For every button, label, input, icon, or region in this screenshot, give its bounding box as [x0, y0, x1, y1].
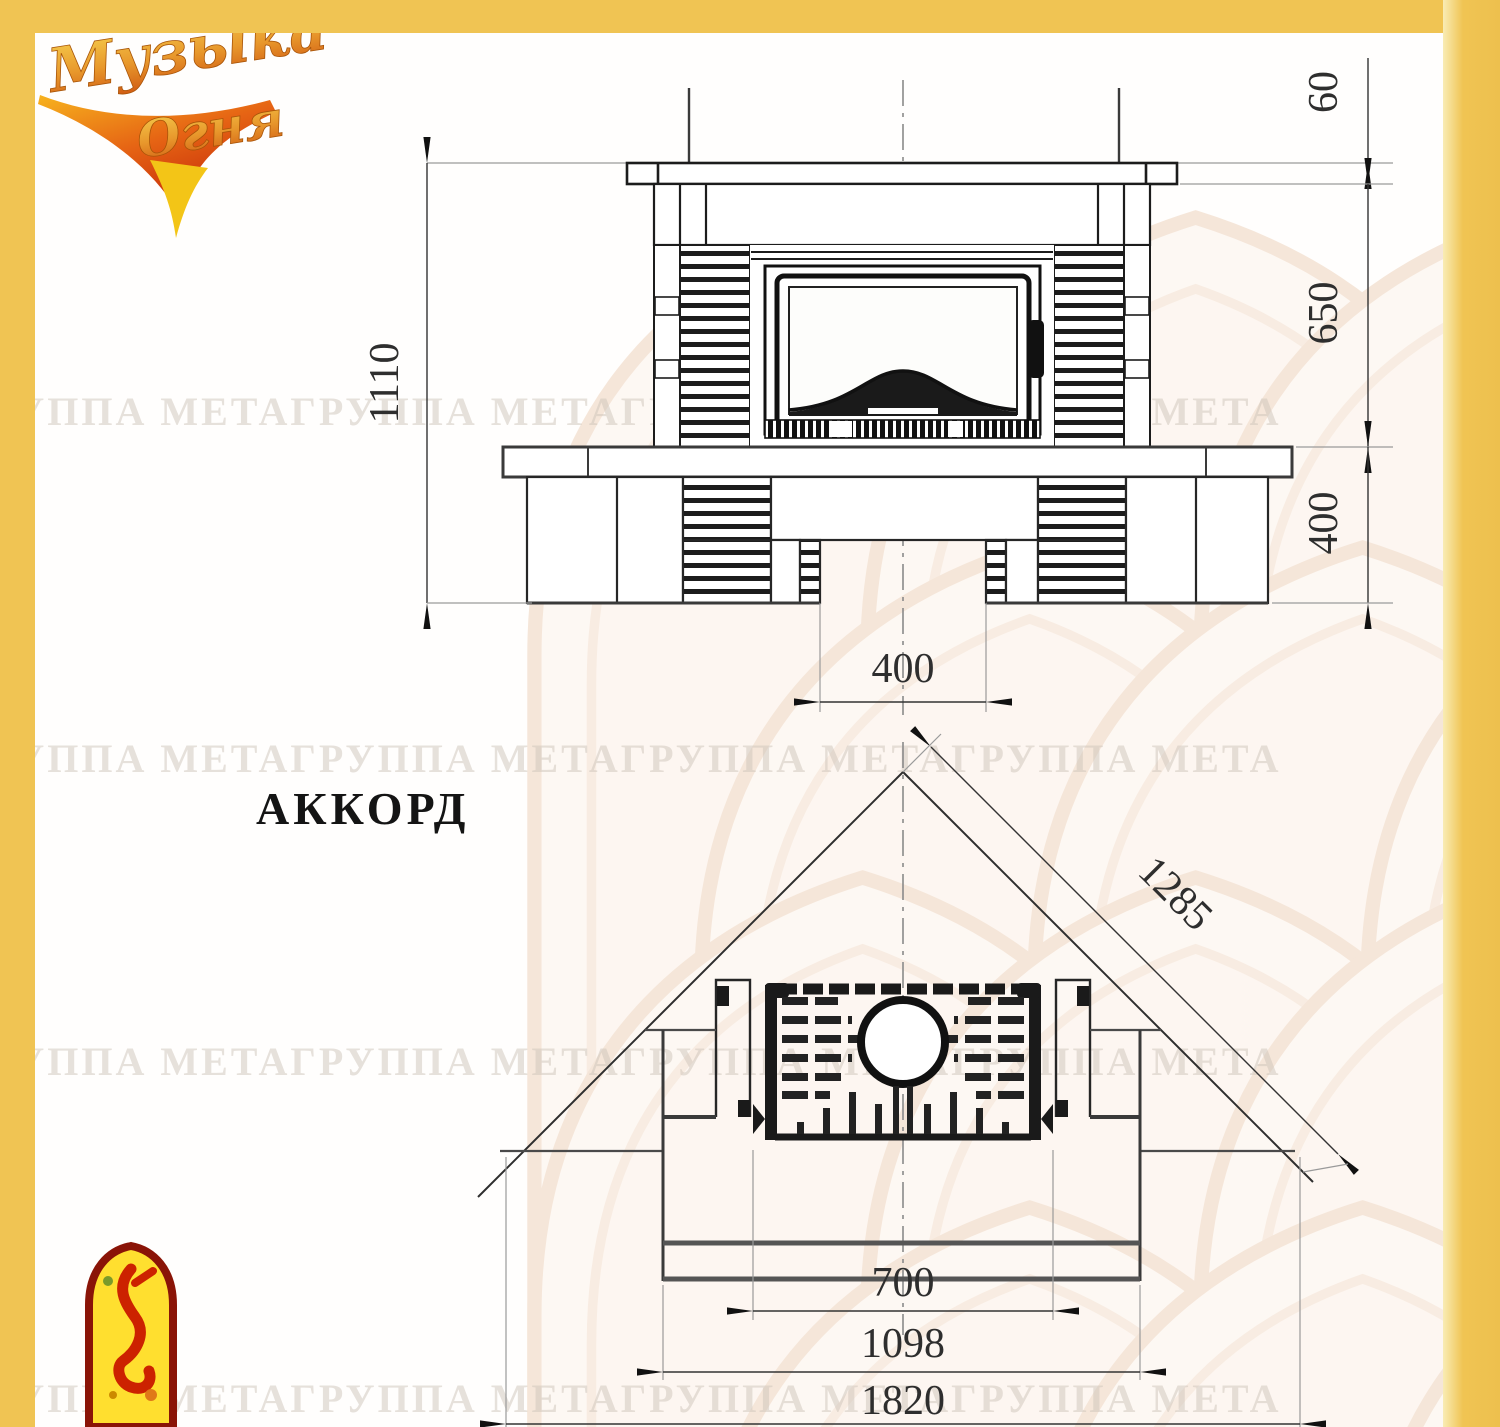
- svg-text:1820: 1820: [861, 1378, 945, 1424]
- hearth-slab: [503, 447, 1292, 477]
- frieze-band: [654, 184, 1150, 245]
- catalog-page: ГРУППА МЕТАГРУППА МЕТАГРУППА МЕТАГРУППА …: [0, 0, 1500, 1427]
- svg-text:400: 400: [1301, 492, 1347, 555]
- yellow-band-left: [0, 0, 35, 1427]
- svg-text:60: 60: [1301, 71, 1347, 113]
- mantel-shelf: [627, 163, 1177, 184]
- flue-collar-circle: [861, 1000, 945, 1084]
- svg-text:650: 650: [1301, 282, 1347, 345]
- logo-flame-tail: [150, 160, 208, 238]
- corner-emblem: [89, 1246, 173, 1427]
- base-center-panel: [771, 477, 1038, 540]
- firebox-insert: [750, 245, 1054, 447]
- logo-music-of-fire: Музыка Огня: [38, 0, 332, 238]
- dim-total-height: 1110: [362, 163, 532, 603]
- svg-text:1110: 1110: [362, 343, 408, 424]
- svg-text:700: 700: [872, 1260, 935, 1306]
- drawing-sheet: ГРУППА МЕТАГРУППА МЕТАГРУППА МЕТАГРУППА …: [0, 0, 1500, 1427]
- model-title: АККОРД: [256, 783, 469, 834]
- yellow-band-top: [0, 0, 1500, 33]
- watermark-text-row: ГРУППА МЕТАГРУППА МЕТАГРУППА МЕТАГРУППА …: [0, 736, 1281, 781]
- grate-band: [765, 420, 1040, 438]
- door-handle: [1028, 320, 1044, 378]
- logo-word-2: Огня: [133, 88, 288, 169]
- base-left-block: [527, 477, 683, 603]
- svg-text:400: 400: [872, 646, 935, 692]
- yellow-band-right: [1443, 0, 1500, 1427]
- svg-text:1098: 1098: [861, 1321, 945, 1367]
- dim-shelf-thickness: 60: [1180, 58, 1393, 184]
- pillar-right: [1054, 245, 1150, 447]
- watermark-text-row: ГРУППА МЕТАГРУППА МЕТАГРУППА МЕТАГРУППА …: [0, 1376, 1281, 1421]
- pillar-left: [654, 245, 750, 447]
